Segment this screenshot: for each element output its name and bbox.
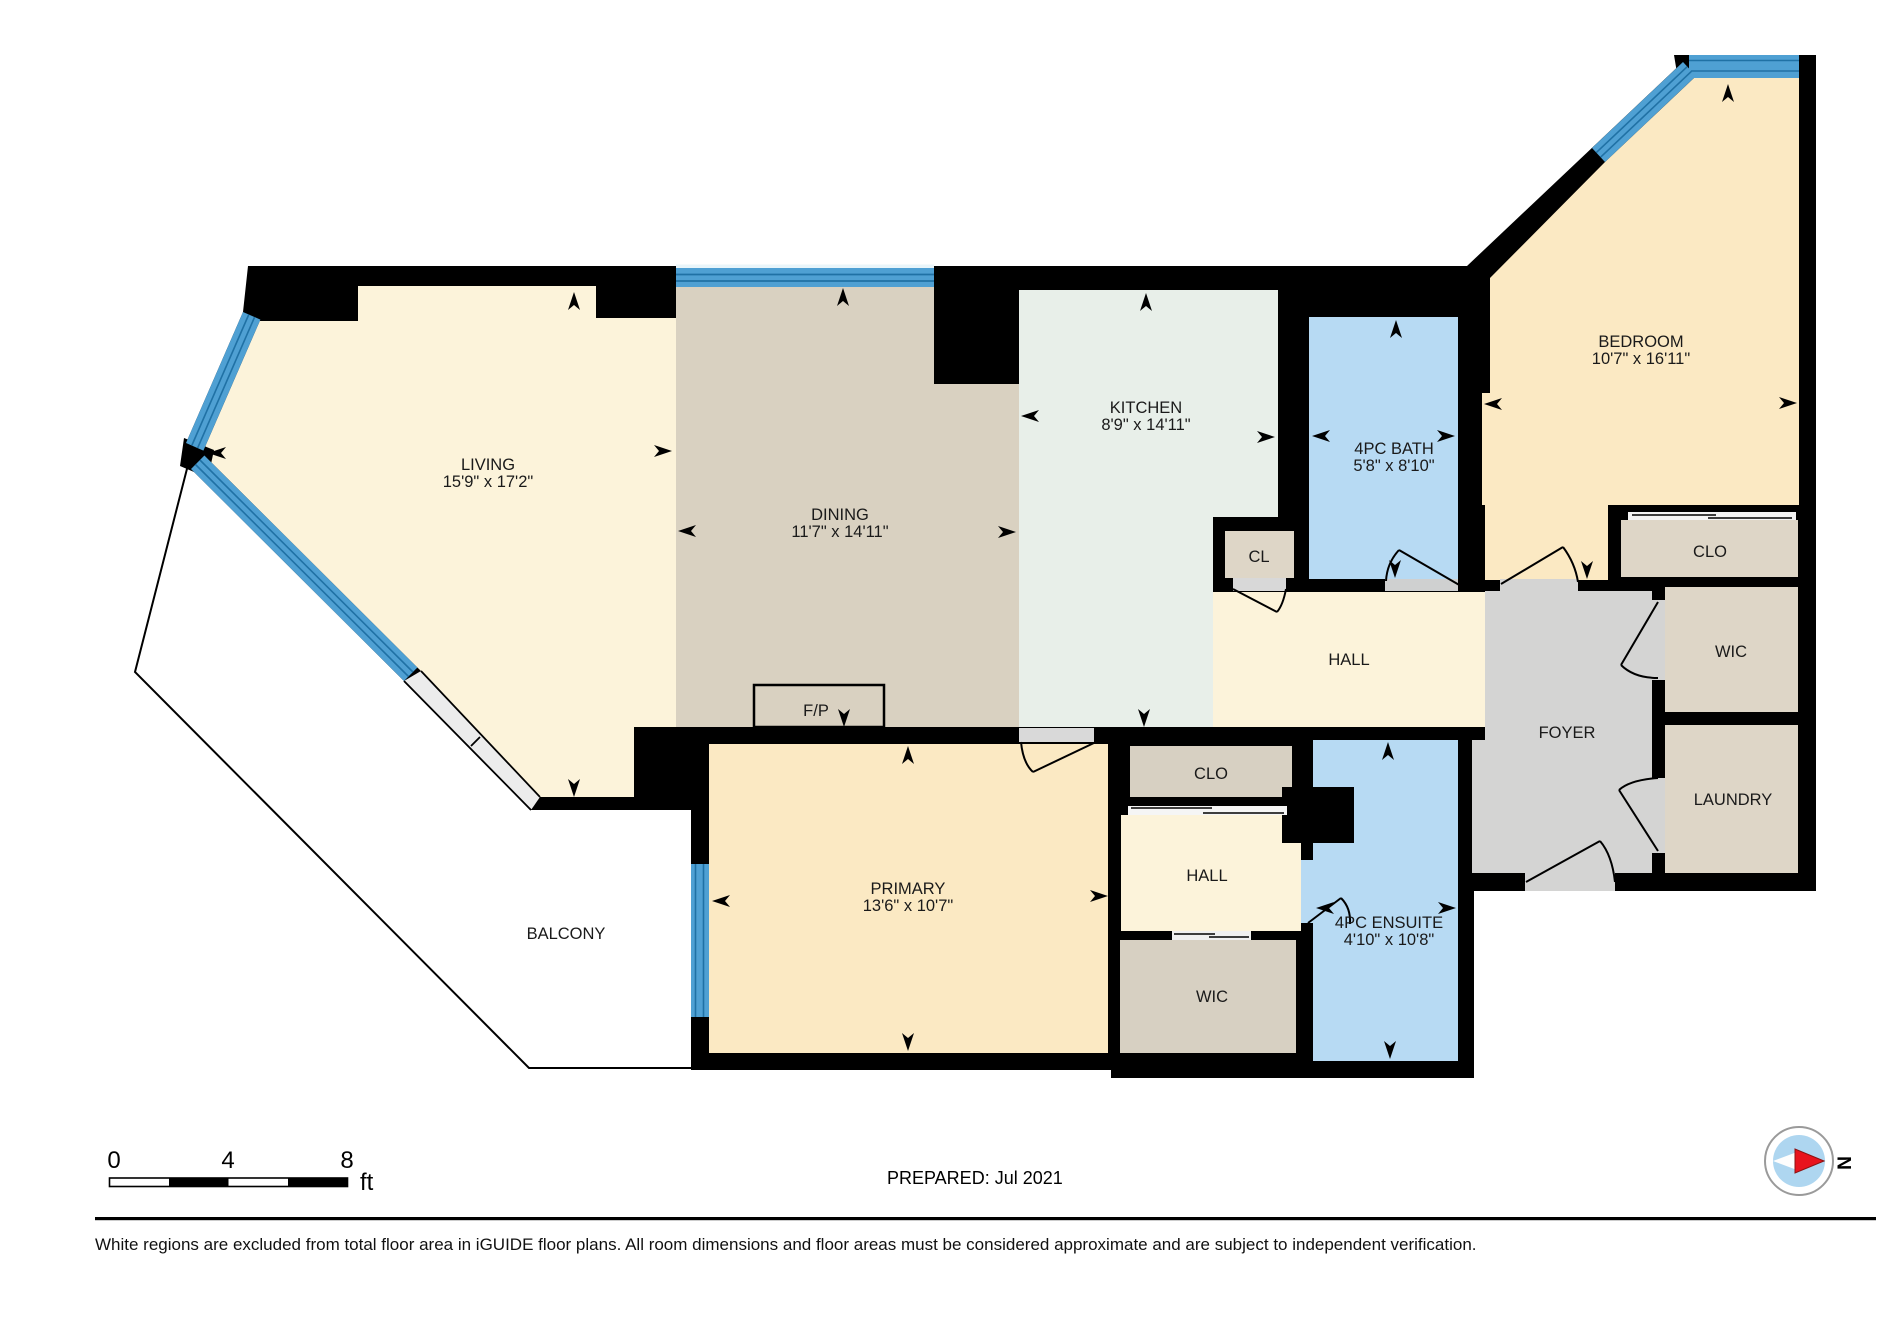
svg-text:ft: ft — [360, 1169, 374, 1196]
svg-text:13'6" x 10'7": 13'6" x 10'7" — [863, 897, 954, 915]
svg-text:BEDROOM: BEDROOM — [1598, 333, 1683, 351]
svg-text:11'7" x 14'11": 11'7" x 14'11" — [791, 523, 888, 541]
svg-text:FOYER: FOYER — [1539, 724, 1596, 742]
svg-text:WIC: WIC — [1196, 988, 1228, 1006]
svg-text:DINING: DINING — [811, 506, 869, 524]
svg-text:WIC: WIC — [1715, 643, 1747, 661]
svg-text:0: 0 — [107, 1147, 120, 1174]
svg-text:HALL: HALL — [1328, 651, 1369, 669]
svg-text:LAUNDRY: LAUNDRY — [1694, 791, 1773, 809]
svg-text:N: N — [1833, 1156, 1854, 1170]
svg-text:White regions are excluded fro: White regions are excluded from total fl… — [95, 1235, 1477, 1254]
svg-text:CL: CL — [1248, 548, 1269, 566]
svg-text:4PC ENSUITE: 4PC ENSUITE — [1335, 914, 1443, 932]
svg-text:HALL: HALL — [1186, 867, 1227, 885]
svg-text:KITCHEN: KITCHEN — [1110, 399, 1182, 417]
svg-text:4PC BATH: 4PC BATH — [1354, 440, 1433, 458]
svg-text:8'9" x 14'11": 8'9" x 14'11" — [1101, 416, 1190, 434]
svg-text:CLO: CLO — [1194, 765, 1228, 783]
svg-text:CLO: CLO — [1693, 543, 1727, 561]
svg-text:8: 8 — [340, 1147, 353, 1174]
svg-text:BALCONY: BALCONY — [527, 925, 606, 943]
svg-text:PRIMARY: PRIMARY — [871, 880, 946, 898]
svg-text:F/P: F/P — [803, 702, 829, 720]
svg-text:10'7" x 16'11": 10'7" x 16'11" — [1592, 350, 1691, 368]
svg-text:4'10" x 10'8": 4'10" x 10'8" — [1344, 931, 1435, 949]
svg-text:LIVING: LIVING — [461, 456, 515, 474]
svg-text:4: 4 — [221, 1147, 234, 1174]
svg-text:5'8" x 8'10": 5'8" x 8'10" — [1353, 457, 1434, 475]
svg-text:15'9" x 17'2": 15'9" x 17'2" — [443, 473, 534, 491]
svg-text:PREPARED: Jul 2021: PREPARED: Jul 2021 — [887, 1168, 1063, 1188]
